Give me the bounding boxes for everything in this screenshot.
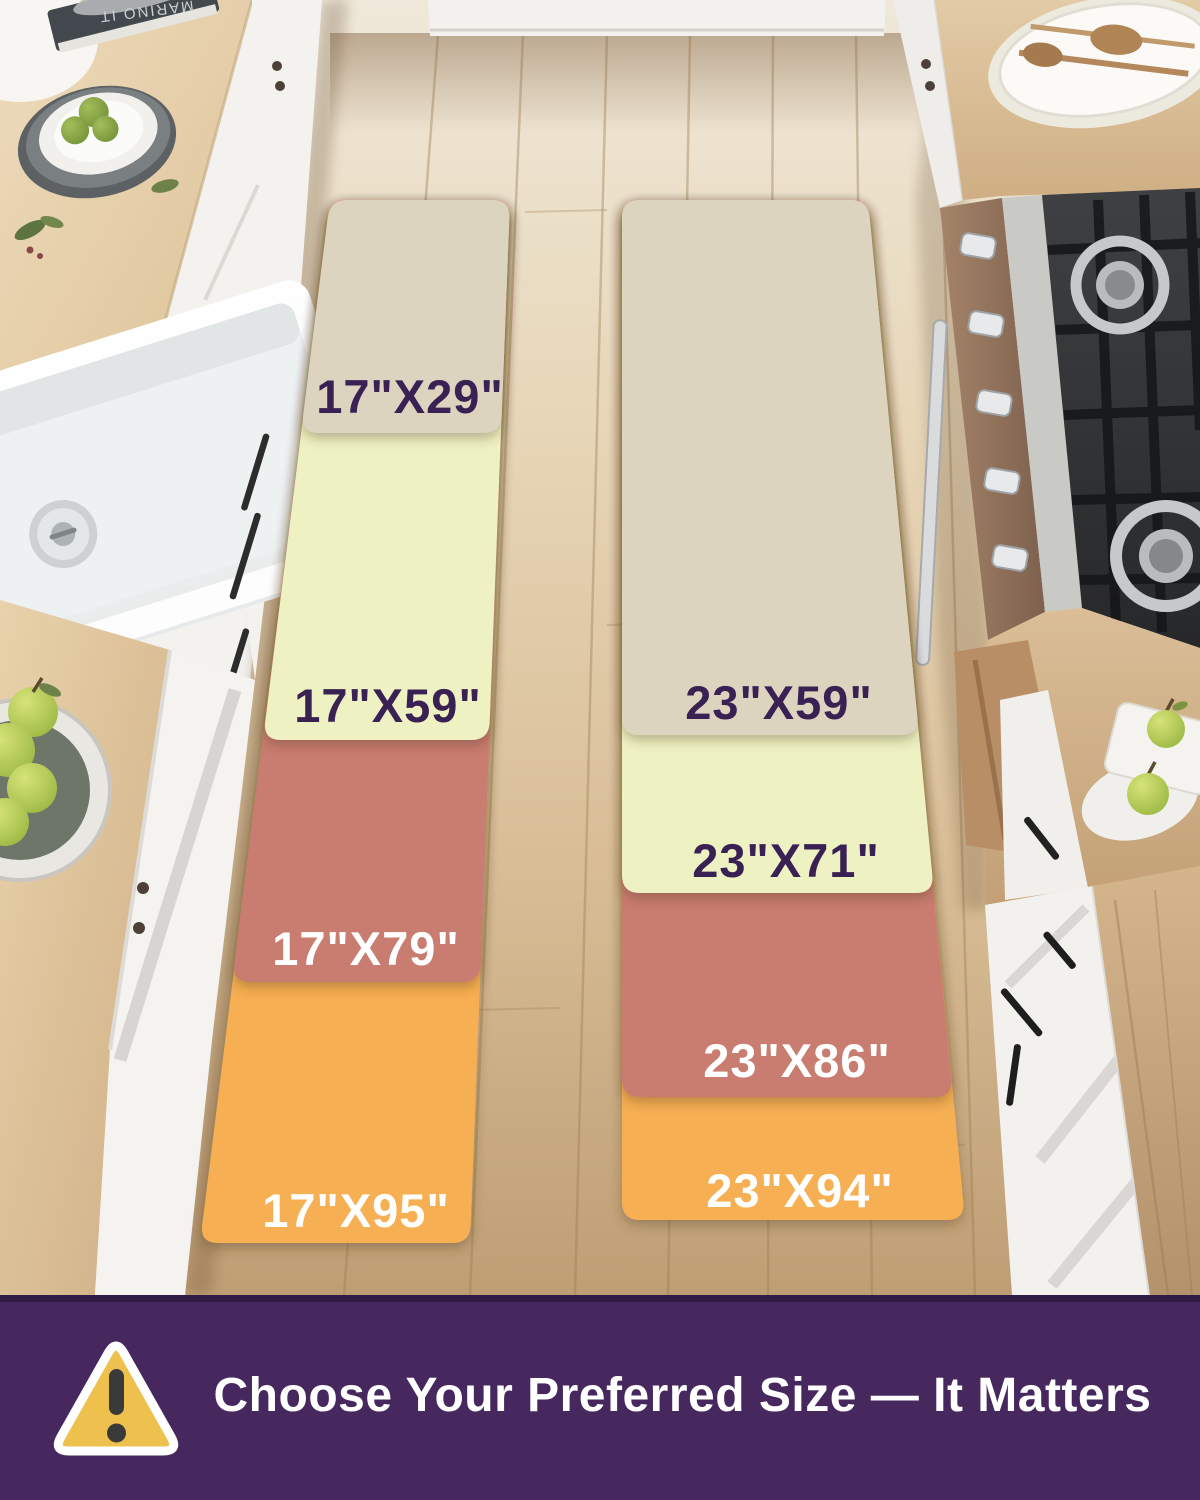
exclamation-bar: [109, 1369, 124, 1415]
cabinet-knob: [137, 882, 149, 894]
mat-size-label-23x59: 23"X59": [614, 675, 944, 730]
mat-size-label-17x79: 17"X79": [201, 921, 531, 976]
wood-countertop-top-right: [935, 0, 1200, 200]
mat-size-label-17x59: 17"X59": [223, 678, 553, 733]
cabinet-knob: [133, 922, 145, 934]
mat-size-label-23x71: 23"X71": [621, 833, 951, 888]
cabinet-knob: [921, 59, 931, 69]
wood-countertop-mid-right: [954, 608, 1200, 905]
mat-size-label-23x86: 23"X86": [632, 1033, 962, 1088]
bottom-banner: Choose Your Preferred Size — It Matters: [0, 1295, 1200, 1500]
kitchen-mat-size-guide: MARINO IT: [0, 0, 1200, 1500]
cabinet-knob: [275, 81, 285, 91]
mat-size-label-23x94: 23"X94": [635, 1163, 965, 1218]
cabinet-knob: [272, 61, 282, 71]
green-apple: [1127, 773, 1169, 815]
warning-icon: [44, 1328, 189, 1470]
exclamation-dot: [107, 1424, 126, 1443]
banner-text: Choose Your Preferred Size — It Matters: [195, 1368, 1170, 1423]
mat-size-label-17x95: 17"X95": [191, 1183, 521, 1238]
stove-knob: [983, 467, 1020, 495]
back-wall-strip: [428, 0, 886, 36]
kitchen-scene: MARINO IT: [0, 0, 1200, 1295]
cabinet-floor-shadow: [330, 33, 980, 133]
stove-knob: [959, 232, 996, 260]
cabinet-knob: [925, 81, 935, 91]
stove-knob: [967, 310, 1004, 338]
mat-size-label-17x29: 17"X29": [245, 369, 575, 424]
green-apple: [1147, 710, 1185, 748]
stove-knob: [975, 389, 1012, 417]
stove-knob: [991, 544, 1028, 572]
mat-23x59-overlay: [622, 200, 917, 735]
